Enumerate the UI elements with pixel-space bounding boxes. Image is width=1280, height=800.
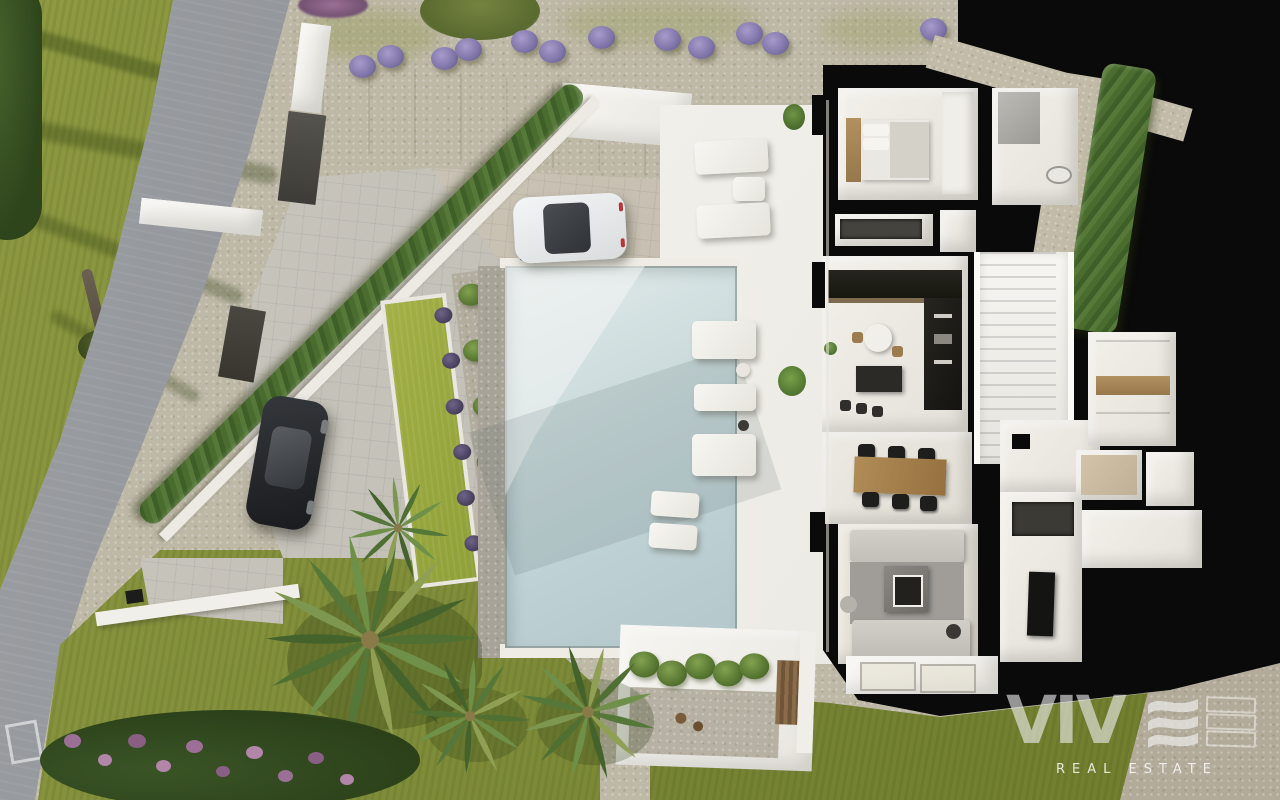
flower	[64, 734, 81, 748]
hallway	[940, 210, 976, 252]
logo-e-icon	[1146, 696, 1200, 748]
appliance	[934, 314, 952, 318]
wood-chair	[892, 346, 903, 357]
duvet	[890, 122, 929, 178]
side-table	[733, 177, 765, 201]
wall-stub	[812, 262, 825, 308]
bathroom	[992, 88, 1078, 205]
stool	[856, 403, 867, 414]
glass-door	[860, 662, 916, 691]
lavender-bush	[736, 22, 763, 45]
white-car	[512, 192, 629, 266]
flower	[340, 774, 354, 785]
decor-ball	[738, 420, 749, 431]
living-room	[838, 524, 978, 664]
palm-tree-medium-2	[516, 640, 660, 784]
bathroom-2	[1076, 450, 1142, 500]
kitchen-counter	[828, 270, 962, 298]
watermark-brand-letters: VIV	[1006, 688, 1124, 754]
small-room	[1146, 452, 1194, 506]
car-taillight	[621, 238, 625, 247]
car-wheel	[306, 500, 315, 515]
dressing-hall	[835, 214, 933, 246]
glass-door	[920, 664, 976, 693]
wall-stub	[810, 512, 825, 552]
lavender-bush	[431, 47, 458, 70]
car-glass	[543, 202, 592, 254]
bed-headboard	[846, 118, 861, 182]
cooktop	[934, 334, 952, 344]
fireplace-insert	[893, 575, 923, 607]
stool	[872, 406, 883, 417]
lavender-bush	[377, 45, 404, 68]
flower	[156, 760, 171, 772]
lavender-bush	[539, 40, 566, 63]
pillow	[863, 138, 889, 150]
flower	[308, 752, 324, 764]
wood-slat-wall	[775, 660, 799, 725]
tiled-floor	[1081, 455, 1137, 495]
sun-lounger	[696, 202, 771, 239]
wall-lamp	[125, 589, 144, 604]
kitchen-island	[856, 366, 902, 392]
daybed	[692, 321, 756, 359]
daybed	[692, 434, 756, 476]
watermark-tagline: REAL ESTATE	[1056, 762, 1218, 777]
lavender-bush	[349, 55, 376, 78]
decor-sphere	[946, 624, 961, 639]
aerial-villa-render: VIV REAL ESTATE	[0, 0, 1280, 800]
lavender-bush	[588, 26, 615, 49]
washbasin	[1046, 166, 1072, 184]
dining-chair	[862, 492, 879, 507]
bedroom-2	[1082, 510, 1202, 568]
palm-crown	[361, 631, 379, 649]
dining-table	[853, 456, 946, 495]
pool-sunbed	[648, 522, 698, 550]
cabinet-seam	[1096, 412, 1170, 414]
road-marking	[5, 720, 43, 765]
pool-sunbed	[650, 490, 700, 518]
flower	[186, 740, 203, 753]
sofa-chaise	[850, 530, 964, 562]
wall-stub	[812, 95, 825, 135]
closet-unit	[840, 219, 922, 239]
lavender-bush	[654, 28, 681, 51]
wood-shelf	[1096, 376, 1170, 395]
flower	[246, 746, 263, 759]
utility-room	[1088, 332, 1176, 446]
pillow	[863, 124, 889, 136]
shelving-unit	[1012, 502, 1074, 536]
daybed	[694, 384, 756, 411]
flower	[278, 770, 293, 782]
shower	[998, 92, 1040, 144]
fireplace	[884, 566, 928, 612]
stool	[840, 400, 851, 411]
tv-room	[1000, 490, 1082, 662]
pouf	[840, 596, 857, 613]
lavender-bush	[511, 30, 538, 53]
potted-plant	[778, 366, 806, 396]
appliance	[934, 360, 952, 364]
wardrobe	[942, 92, 974, 194]
sun-lounger	[694, 138, 769, 175]
logo-outline-bar	[1206, 730, 1257, 748]
dining-chair	[920, 496, 937, 511]
car-taillight	[619, 202, 623, 211]
dining-chair	[892, 494, 909, 509]
lavender-bush	[688, 36, 715, 59]
round-table	[864, 324, 892, 352]
tv-panel	[1027, 572, 1055, 637]
flower-bed	[40, 690, 440, 800]
south-terrace	[846, 656, 998, 694]
foliage	[40, 710, 420, 800]
potted-plant	[783, 104, 805, 130]
palm-crown	[582, 706, 594, 718]
palm-crown	[394, 524, 403, 533]
wood-chair	[852, 332, 863, 343]
round-table	[736, 363, 750, 377]
dark-bush	[0, 0, 42, 240]
lavender-bush	[455, 38, 482, 61]
lavender-bush	[762, 32, 789, 55]
flower	[98, 754, 112, 766]
palm-crown	[465, 711, 475, 721]
glass-wall	[826, 100, 829, 652]
wall-stub	[1012, 434, 1030, 449]
watermark: VIV REAL ESTATE	[1000, 688, 1280, 798]
dining-area	[822, 432, 972, 524]
logo-outline-bar	[1206, 696, 1257, 714]
palm-tree-small	[344, 474, 452, 582]
cabinet-seam	[1096, 340, 1170, 342]
logo-outline-bar	[1206, 713, 1257, 731]
flower	[216, 766, 230, 777]
kitchen	[822, 256, 968, 432]
car-wheel	[320, 419, 329, 434]
flower	[128, 734, 146, 748]
bedroom	[838, 88, 978, 200]
